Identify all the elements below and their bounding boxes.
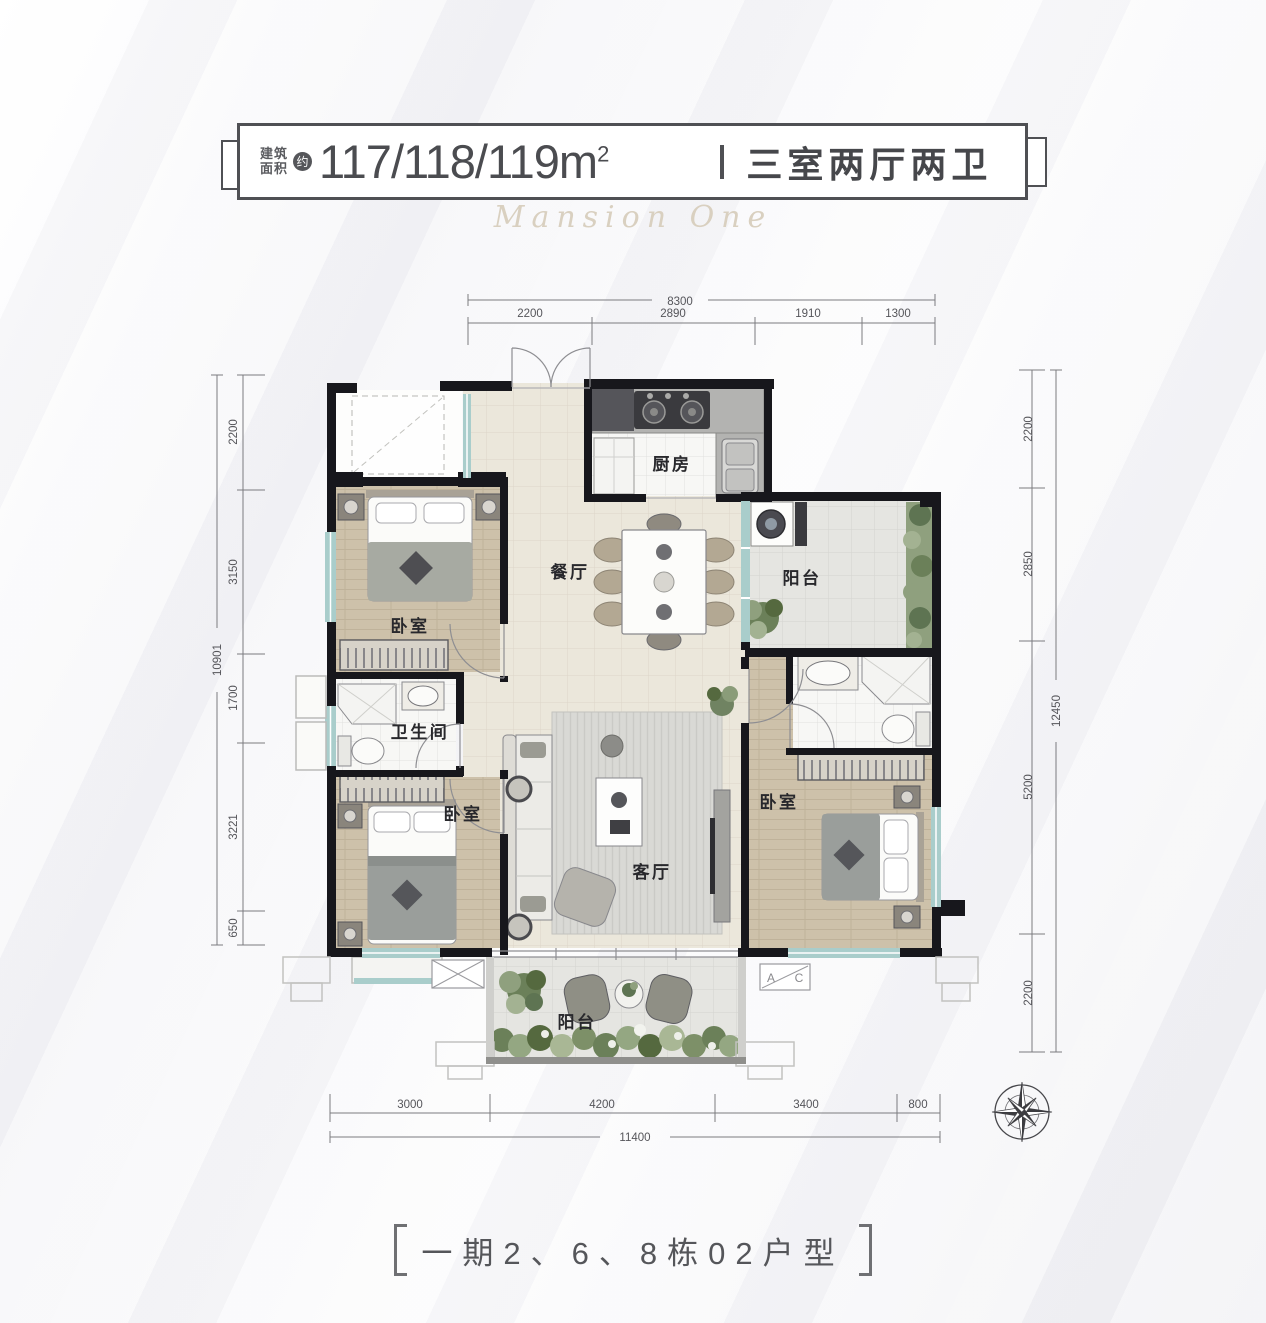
washing-machine-icon [751,502,807,546]
floorplan-page: 建筑 面积 约 117/118/119m2 三室两厅两卫 Mansion One [0,0,1266,1323]
dim-label: 3000 [397,1099,423,1111]
compass-icon [992,1082,1052,1142]
area-prefix: 建筑 面积 [260,147,288,177]
wall-segment [438,948,492,957]
pillar-ornament [283,957,330,983]
toilet-icon [882,712,930,746]
building-type-text: 一期2、6、8栋02户型 [407,1228,858,1273]
dim-label: 2890 [660,308,686,320]
dim-label: 800 [908,1099,927,1111]
wall-segment [932,905,941,955]
wall-segment [584,494,646,502]
pillar-ornament [448,1066,482,1079]
bed-icon [366,490,474,601]
ac-unit-box: A C [760,964,810,990]
sink-icon [402,682,444,710]
wall-segment [764,379,772,501]
area-value: 117/118/119m2 [319,134,608,189]
ac-label-a: A [767,971,775,985]
wall-segment [440,381,512,391]
dim-label: 3150 [228,559,240,585]
pillar-ornament [436,1042,494,1066]
footer-right-bracket [859,1224,872,1276]
dim-label: 650 [228,918,240,937]
dim-label: 2200 [517,308,543,320]
approx-badge: 约 [293,152,312,171]
dim-label: 5200 [1023,774,1035,800]
pillar-ornament [942,983,970,1001]
dim-label: 2200 [228,419,240,445]
shaft-box [296,676,326,718]
wardrobe-icon [340,776,444,802]
dim-label: 10901 [212,644,224,676]
footer-caption: 一期2、6、8栋02户型 [0,1224,1266,1276]
dimension-left-labels: 10901 2200 3150 1700 3221 650 [212,419,240,937]
wall-segment [456,672,464,724]
room-label-bedroom-top-left: 卧室 [391,616,430,636]
planter-strip-icon [903,502,934,650]
balcony-side-wall [738,957,746,1063]
area-exponent: 2 [597,141,608,166]
pillar-ornament [936,957,978,983]
wall-segment [500,834,508,955]
dim-label: 4200 [589,1099,615,1111]
wall-segment [327,948,363,957]
wall-segment [584,379,592,501]
layout-type-label: 三室两厅两卫 [746,136,992,188]
entry-door-arc [512,348,551,387]
balcony-side-wall [486,957,494,1063]
wall-segment [333,472,363,487]
dim-label: 12450 [1051,695,1063,727]
wall-segment [741,657,749,669]
room-label-balcony-bottom: 阳台 [558,1012,597,1032]
planter-icon [507,915,531,939]
footer-left-bracket [394,1224,407,1276]
wardrobe-icon [340,640,448,670]
wall-segment [500,770,508,779]
wall-segment [327,672,463,679]
pillar-ornament [291,983,322,1001]
coffee-table-icon [596,778,642,846]
dim-label: 8300 [667,296,693,308]
dim-label: 2200 [1023,416,1035,442]
wall-segment [745,648,941,657]
dim-label: 1700 [228,685,240,711]
vanity-icon [798,656,858,690]
pillar-ornament [748,1066,782,1079]
wall-segment [327,383,336,955]
shaft-box [296,722,326,770]
wall-segment [941,900,965,916]
bed-icon [822,812,924,902]
room-label-kitchen: 厨房 [653,454,692,474]
wall-segment [738,948,790,957]
dim-label: 1300 [885,308,911,320]
room-label-bedroom-master: 卧室 [760,792,799,812]
dim-label: 3221 [228,814,240,840]
balcony-rail [486,1057,746,1064]
room-label-bedroom-bottom-left: 卧室 [444,804,483,824]
room-label-bathroom: 卫生间 [391,722,450,742]
dimension-right-labels: 12450 2200 2850 5200 2200 [1023,416,1063,1006]
dim-label: 3400 [793,1099,819,1111]
flower-box-icon [432,960,484,988]
header-divider [720,145,724,179]
pouf-icon [601,735,623,757]
dim-label: 1910 [795,308,821,320]
wall-segment [786,748,936,755]
wall-segment [898,948,942,957]
wall-segment [786,648,793,704]
dim-label: 2850 [1023,551,1035,577]
sofa-icon [503,735,552,920]
toilet-icon [338,736,384,766]
wall-segment [500,481,508,624]
ac-label-c: C [795,971,804,985]
dim-label: 2200 [1023,980,1035,1006]
room-label-living: 客厅 [632,862,672,882]
wall-segment [741,723,749,955]
room-label-dining: 餐厅 [551,562,590,582]
wall-segment [745,492,940,501]
wall-segment [584,379,774,389]
planter-icon [507,777,531,801]
wardrobe-icon [798,752,924,780]
wall-segment [932,659,941,809]
room-label-balcony-right: 阳台 [783,568,822,588]
window [354,978,440,984]
window-slider [741,501,750,642]
shower-icon [338,684,396,724]
dim-label: 11400 [619,1132,650,1144]
wall-segment [327,770,463,777]
wall-segment [932,492,941,659]
header-banner: 建筑 面积 约 117/118/119m2 三室两厅两卫 [237,123,1028,200]
